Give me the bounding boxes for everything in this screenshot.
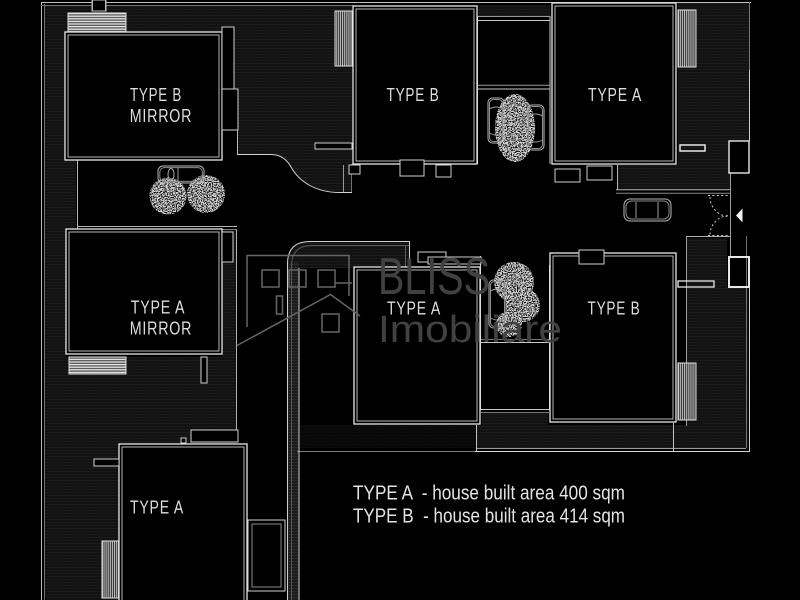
svg-text:Imobiliare: Imobiliare <box>378 309 562 351</box>
svg-text:TYPE B: TYPE B <box>588 299 641 319</box>
svg-text:TYPE A - house built area 400: TYPE A - house built area 400 sqm <box>353 482 625 505</box>
svg-text:TYPE B - house built area 414: TYPE B - house built area 414 sqm <box>353 505 625 528</box>
svg-text:TYPE B: TYPE B <box>387 85 440 105</box>
svg-text:MIRROR: MIRROR <box>130 106 193 126</box>
svg-text:TYPE B: TYPE B <box>130 85 182 105</box>
svg-text:MIRROR: MIRROR <box>130 319 193 339</box>
svg-text:TYPE A: TYPE A <box>588 85 642 105</box>
svg-text:TYPE A: TYPE A <box>130 498 184 518</box>
svg-text:TYPE A: TYPE A <box>131 298 186 318</box>
svg-text:BLISS: BLISS <box>378 248 490 306</box>
